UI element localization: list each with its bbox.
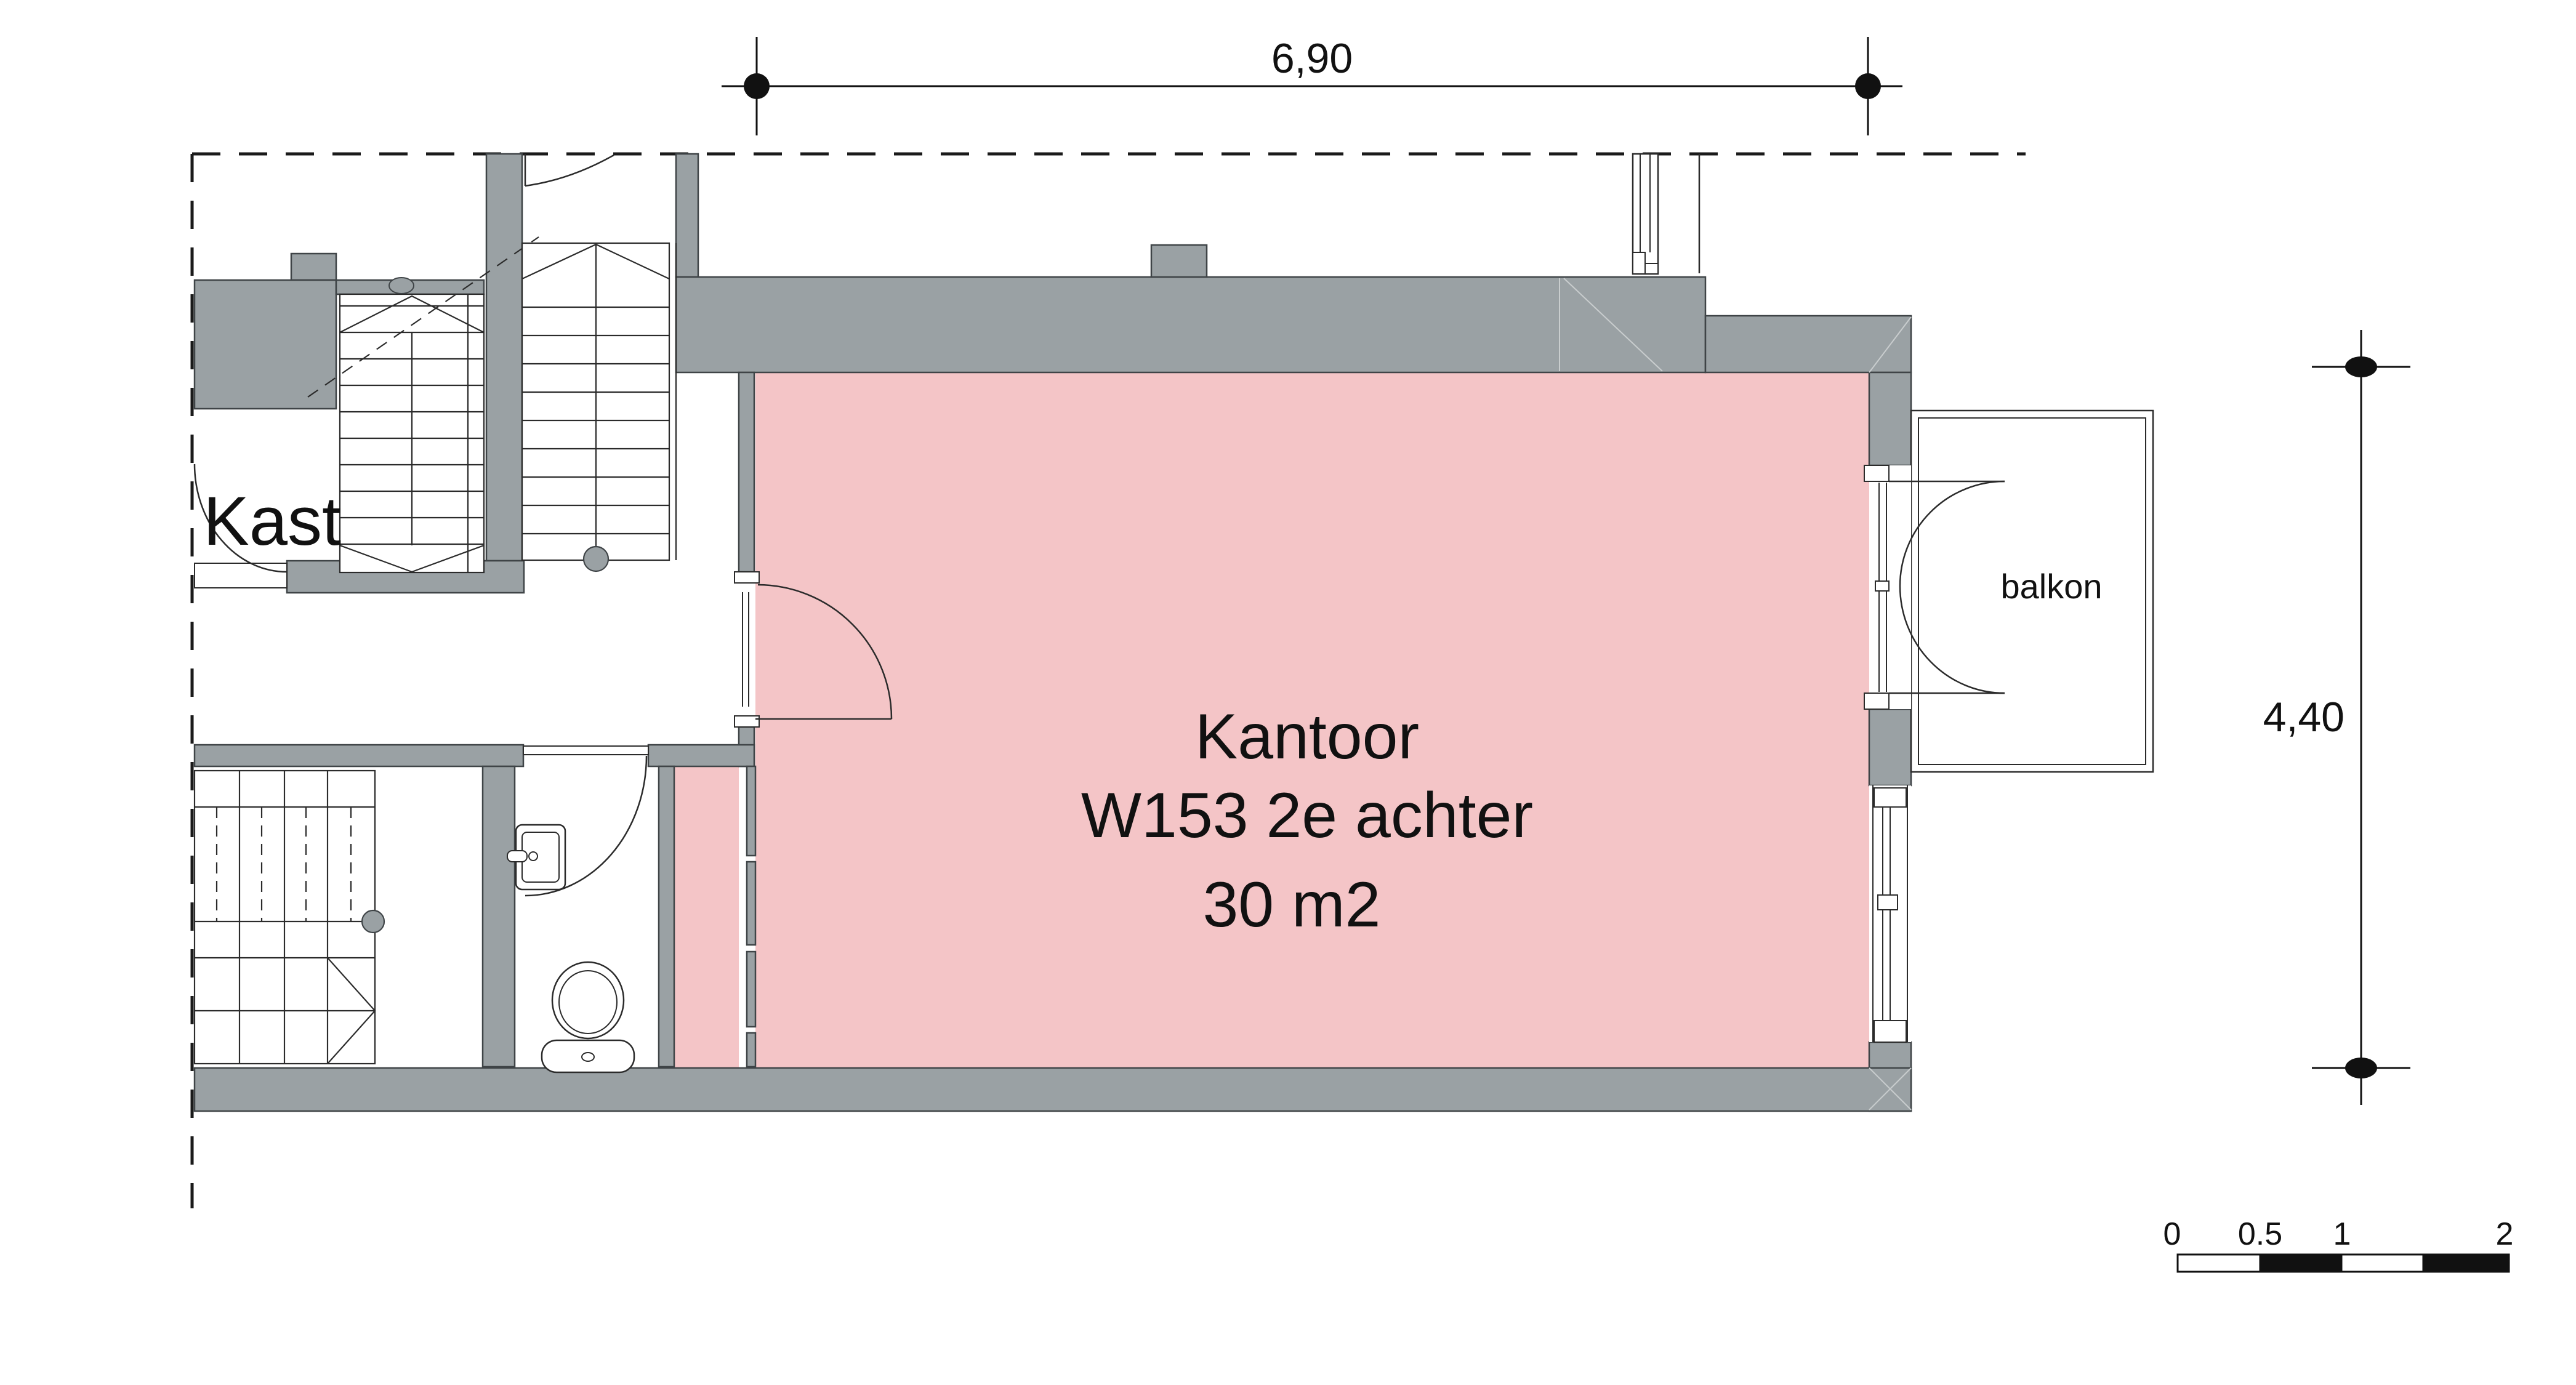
scale-tick-0: 0 xyxy=(2163,1216,2181,1252)
staircase-upper-right xyxy=(522,243,676,571)
office-name: Kantoor xyxy=(1195,701,1419,773)
floor-plan-drawing: Kast Kantoor W153 2e achter 30 m2 balkon… xyxy=(0,0,2576,1385)
wall-hall-bottom-left xyxy=(195,745,523,766)
wall-bump-topleft xyxy=(291,254,336,280)
wall-top-band-right xyxy=(1705,316,1911,372)
scale-tick-1: 1 xyxy=(2333,1216,2351,1252)
closet-label: Kast xyxy=(203,483,341,560)
wall-column-dot xyxy=(389,278,414,294)
scale-tick-2: 2 xyxy=(2496,1216,2514,1252)
scale-bar xyxy=(2178,1255,2509,1272)
staircase-lower-left xyxy=(195,771,384,1064)
scale-tick-05: 0.5 xyxy=(2238,1216,2282,1252)
wall-bottom-band xyxy=(195,1068,1911,1111)
sink-icon xyxy=(507,825,565,889)
wall-office-left-upper xyxy=(739,372,754,572)
wall-partition-seg xyxy=(747,862,755,945)
wall-top-band xyxy=(676,277,1705,372)
wall-upper-vertical xyxy=(676,154,698,277)
door-stairwell-top xyxy=(525,154,614,186)
balcony-label: balkon xyxy=(2000,567,2102,606)
toilet-icon xyxy=(542,962,634,1072)
wall-hall-bottom-right xyxy=(648,745,754,766)
wall-right-upper xyxy=(1869,372,1911,465)
window-right-lower xyxy=(1869,785,1911,1042)
wall-bump-top xyxy=(1151,245,1207,277)
wall-partition-seg xyxy=(747,766,755,856)
wall-stairwell xyxy=(486,154,522,561)
window-top xyxy=(1633,154,1658,274)
wall-block-left xyxy=(195,280,336,409)
wall-wc-left xyxy=(483,766,515,1067)
floor-plan-page: Kast Kantoor W153 2e achter 30 m2 balkon… xyxy=(0,0,2576,1385)
dimension-right-value: 4,40 xyxy=(2263,694,2345,741)
wall-right-middle xyxy=(1869,709,1911,785)
staircase-upper-left xyxy=(340,294,484,572)
office-code: W153 2e achter xyxy=(1081,780,1533,851)
wall-partition-seg xyxy=(747,952,755,1027)
wall-wc-right xyxy=(659,766,674,1067)
office-area: 30 m2 xyxy=(1202,869,1380,941)
wall-partition-seg xyxy=(747,1033,755,1067)
dimension-top-value: 6,90 xyxy=(1271,35,1353,82)
